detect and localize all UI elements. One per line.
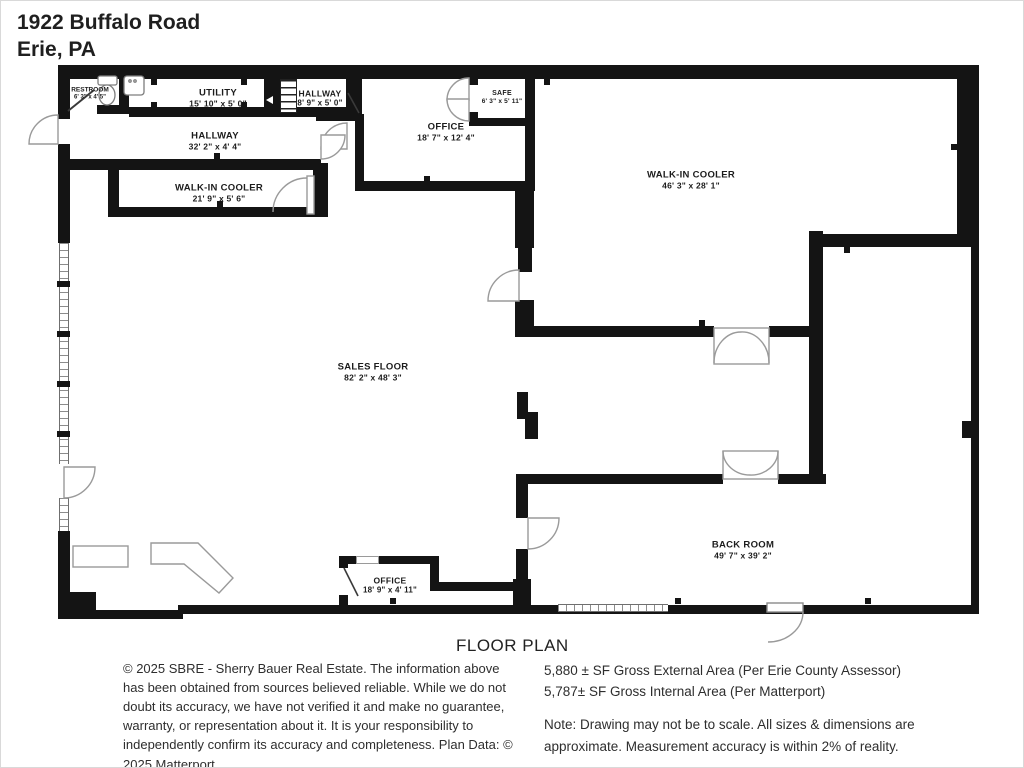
wall-segment xyxy=(809,231,823,484)
window-strip xyxy=(59,498,69,531)
wall-segment xyxy=(108,207,328,217)
gross-internal-area: 5,787± SF Gross Internal Area (Per Matte… xyxy=(544,682,984,703)
door-swing-icon xyxy=(741,332,769,363)
room-label-restroom: RESTROOM 6' 3" x 4' 5" xyxy=(71,87,109,102)
wall-segment xyxy=(515,326,714,337)
dimension-tick xyxy=(844,247,850,253)
address-line1: 1922 Buffalo Road xyxy=(17,10,200,37)
room-label-walkin-cooler-large: WALK-IN COOLER 46' 3" x 28' 1" xyxy=(647,169,735,190)
wall-segment xyxy=(430,582,518,591)
window-mullion xyxy=(57,431,70,437)
property-address: 1922 Buffalo Road Erie, PA xyxy=(17,10,200,64)
wall-segment xyxy=(339,556,356,564)
dimension-tick xyxy=(390,598,396,604)
door-swing-icon xyxy=(321,123,347,149)
wall-segment xyxy=(70,159,321,170)
wall-segment xyxy=(346,65,362,121)
door-swing-icon xyxy=(447,99,469,121)
room-label-hallway-top: HALLWAY 8' 9" x 5' 0" xyxy=(297,88,342,107)
address-line2: Erie, PA xyxy=(17,37,200,64)
wall-segment xyxy=(58,144,70,243)
window-mullion xyxy=(57,331,70,337)
room-label-utility: UTILITY 15' 10" x 5' 0" xyxy=(189,87,247,108)
window-mullion xyxy=(57,381,70,387)
wall-segment xyxy=(469,79,478,85)
room-label-sales-floor: SALES FLOOR 82' 2" x 48' 3" xyxy=(338,361,409,382)
double-door-icon xyxy=(714,328,769,364)
room-label-safe: SAFE 6' 3" x 5' 11" xyxy=(482,90,523,106)
wall-segment xyxy=(469,118,535,126)
stairs-icon xyxy=(264,79,280,113)
scale-note: Note: Drawing may not be to scale. All s… xyxy=(544,714,976,757)
wall-segment xyxy=(355,181,535,191)
dimension-tick xyxy=(951,144,957,150)
door-swing-icon xyxy=(723,451,750,475)
door-swing-icon xyxy=(750,451,778,475)
window-strip xyxy=(356,556,379,564)
wall-segment xyxy=(355,114,364,190)
wall-segment xyxy=(513,579,531,609)
wall-segment xyxy=(525,412,538,439)
door-swing-icon xyxy=(447,78,469,100)
door-swing-icon xyxy=(768,612,803,642)
dimension-tick xyxy=(675,598,681,604)
room-label-back-room: BACK ROOM 49' 7" x 39' 2" xyxy=(712,539,774,560)
wall-segment xyxy=(778,474,826,484)
window-mullion xyxy=(57,281,70,287)
wall-segment xyxy=(313,163,328,217)
wall-segment xyxy=(525,79,535,188)
wall-segment xyxy=(957,65,979,247)
room-label-office-bottom: OFFICE 18' 9" x 4' 11" xyxy=(363,575,417,594)
room-label-walkin-cooler-small: WALK-IN COOLER 21' 9" x 5' 6" xyxy=(175,182,263,203)
wall-segment xyxy=(58,105,67,114)
gross-external-area: 5,880 ± SF Gross External Area (Per Erie… xyxy=(544,661,984,682)
dimension-tick xyxy=(151,79,157,85)
dimension-tick xyxy=(528,142,534,148)
door-swing-icon xyxy=(714,332,741,363)
door-swing-icon xyxy=(64,467,95,498)
counter-shape xyxy=(73,546,128,567)
dimension-tick xyxy=(699,320,705,326)
area-summary: 5,880 ± SF Gross External Area (Per Erie… xyxy=(544,661,984,703)
stairs-icon xyxy=(280,79,297,113)
room-label-office-top: OFFICE 18' 7" x 12' 4" xyxy=(417,121,475,142)
window-strip xyxy=(558,604,668,612)
dimension-tick xyxy=(241,79,247,85)
dimension-tick xyxy=(424,176,430,182)
wall-segment xyxy=(518,248,532,272)
pilaster xyxy=(962,421,974,438)
room-label-hallway-main: HALLWAY 32' 2" x 4' 4" xyxy=(189,130,242,151)
wall-segment xyxy=(339,595,348,607)
dimension-tick xyxy=(544,79,550,85)
door-swing-icon xyxy=(528,518,559,549)
door-swing-icon xyxy=(321,135,345,159)
dimension-tick xyxy=(390,557,396,563)
door-swing-icon xyxy=(488,270,519,301)
plan-title: FLOOR PLAN xyxy=(456,636,569,656)
wall-segment xyxy=(516,474,723,484)
dimension-tick xyxy=(865,598,871,604)
floor-plan-page: 1922 Buffalo Road Erie, PA xyxy=(0,0,1024,768)
door-swing-icon xyxy=(29,115,58,144)
wall-segment xyxy=(58,65,974,79)
wall-segment xyxy=(58,592,96,612)
wall-segment xyxy=(97,105,129,114)
sink-icon xyxy=(134,80,136,82)
double-door-icon xyxy=(723,451,778,479)
dimension-tick xyxy=(424,71,430,77)
wall-segment xyxy=(515,186,534,248)
disclaimer-text: © 2025 SBRE - Sherry Bauer Real Estate. … xyxy=(123,659,521,768)
door-leaf xyxy=(344,568,358,596)
wall-segment xyxy=(316,114,356,121)
wall-segment xyxy=(516,484,528,518)
wall-segment xyxy=(58,610,183,619)
dimension-tick xyxy=(214,153,220,159)
sink-icon xyxy=(129,80,131,82)
counter-shape xyxy=(151,543,233,593)
dimension-tick xyxy=(151,102,157,108)
wall-segment xyxy=(823,234,979,247)
